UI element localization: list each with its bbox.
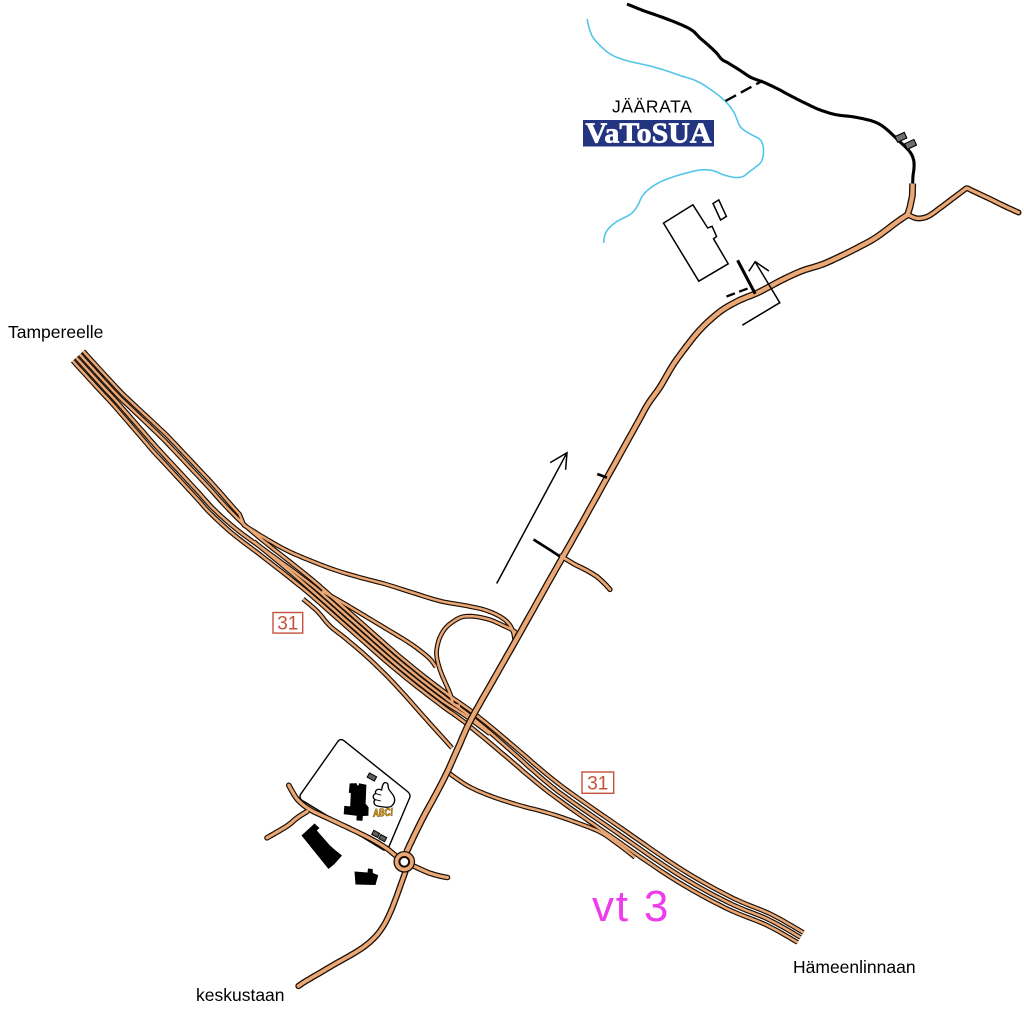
svg-text:keskustaan: keskustaan (196, 985, 285, 1005)
svg-text:31: 31 (587, 774, 608, 795)
svg-text:JÄÄRATA: JÄÄRATA (612, 97, 692, 117)
svg-text:31: 31 (277, 614, 298, 635)
svg-text:Tampereelle: Tampereelle (8, 322, 103, 342)
svg-text:VaToSUA: VaToSUA (586, 118, 712, 149)
svg-text:ABC!: ABC! (372, 806, 394, 819)
svg-text:vt 3: vt 3 (592, 882, 670, 931)
svg-text:Hämeenlinnaan: Hämeenlinnaan (793, 957, 916, 977)
